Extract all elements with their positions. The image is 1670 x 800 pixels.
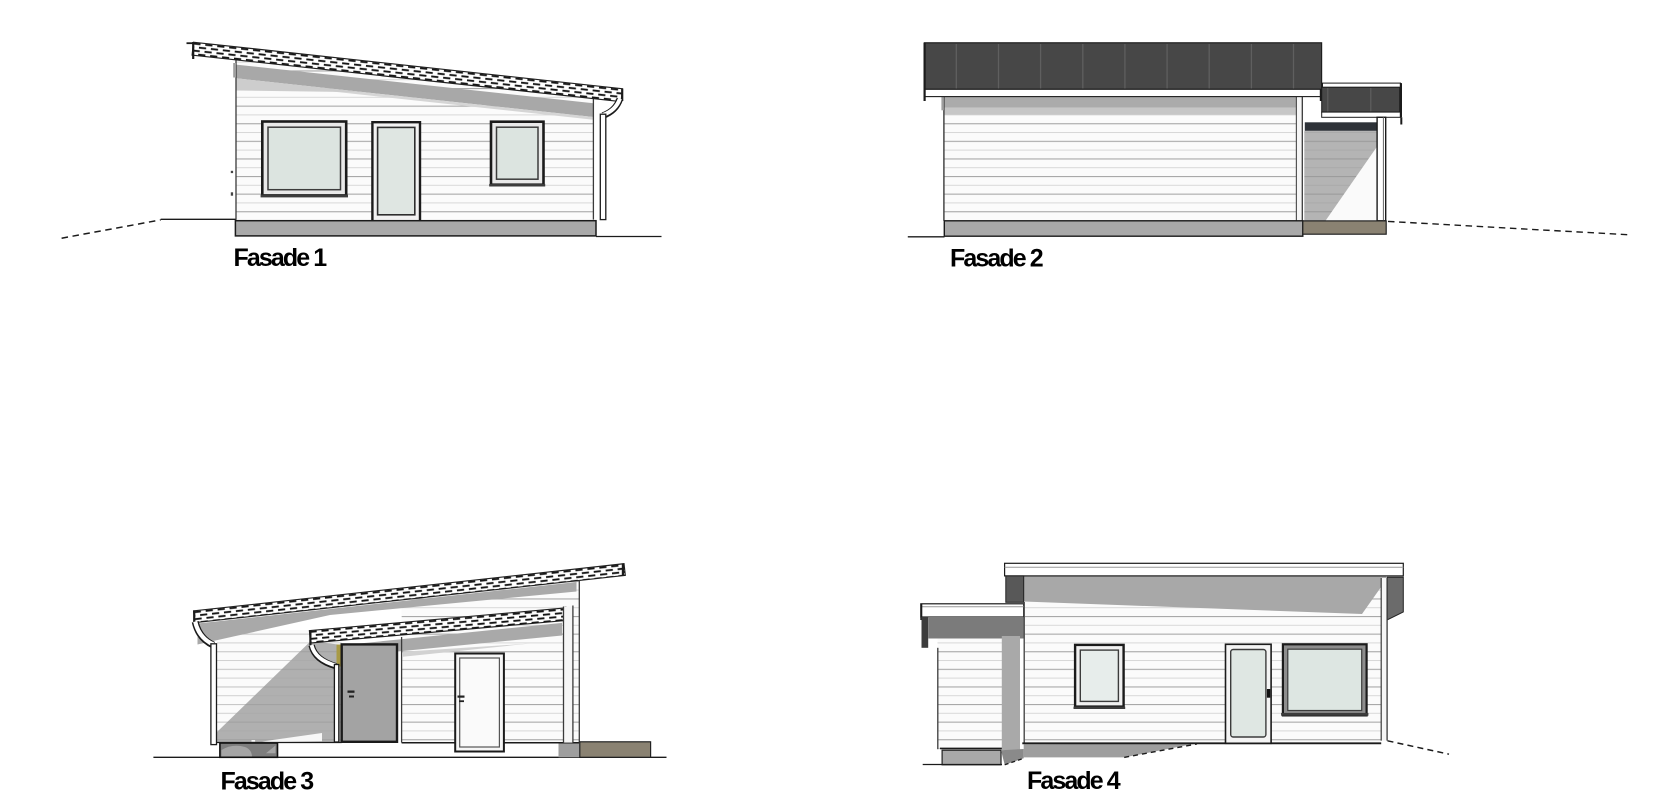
svg-text:Fasade 1: Fasade 1 [234,244,328,272]
svg-text:Fasade 4: Fasade 4 [1027,767,1121,795]
svg-text:Fasade 2: Fasade 2 [950,245,1043,273]
svg-text:Fasade 3: Fasade 3 [221,768,314,796]
